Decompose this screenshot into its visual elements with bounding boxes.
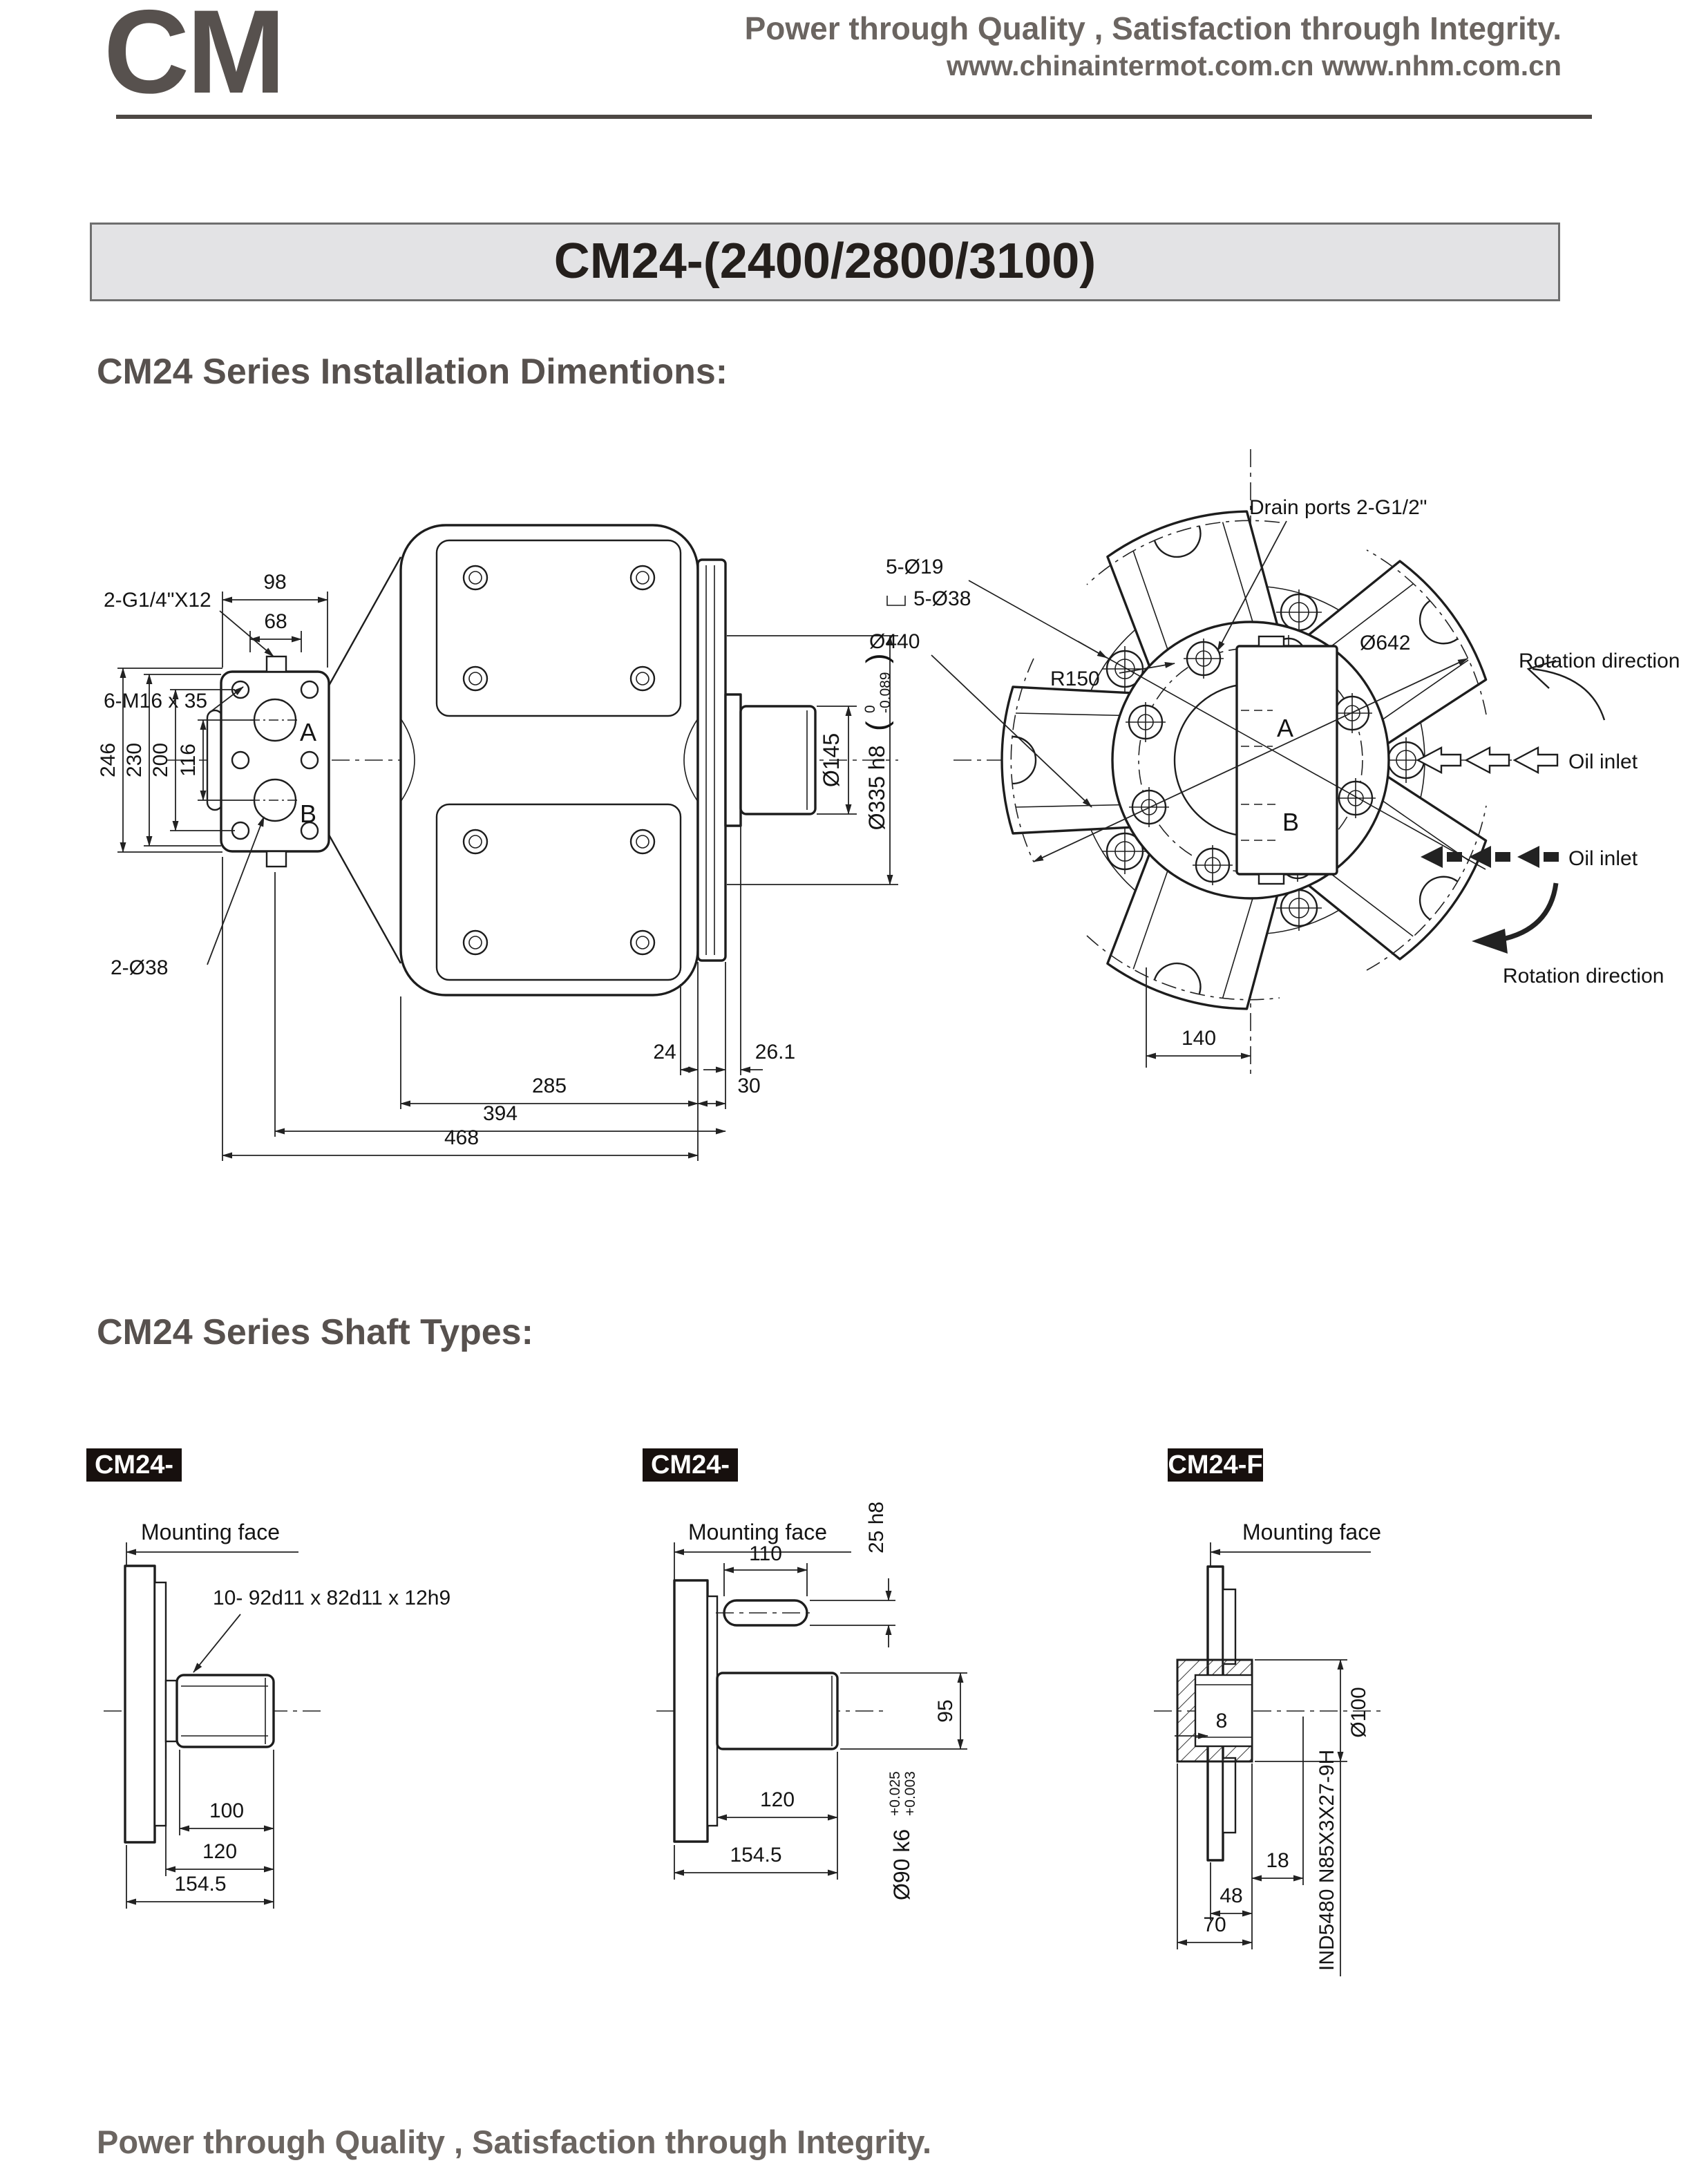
shaft-p-drawing: Mounting face 110 25 h8 95 Ø90 k6 +0.025 (656, 1502, 967, 1900)
dim-pilot-dia: Ø335 h8 ( 0 -0.089 ) (860, 653, 894, 830)
rotation-direction-top-label: Rotation direction (1519, 650, 1680, 672)
dim-30: 30 (737, 1075, 760, 1097)
model-title-bar: CM24-(2400/2800/3100) (90, 223, 1560, 301)
svg-text:Ø335 h8: Ø335 h8 (864, 746, 889, 831)
side-view-drawing: A B 98 68 2-G1/4"X12 6-M16 x 35 2-Ø38 24… (97, 525, 898, 1161)
paren-open: ( (860, 721, 894, 731)
footer-tagline: Power through Quality , Satisfaction thr… (97, 2123, 931, 2161)
counterbore-icon (887, 596, 905, 605)
shaft-p-tol-lower: +0.003 (902, 1771, 918, 1816)
dim-26-1: 26.1 (755, 1041, 795, 1063)
shaft-p-dim-110: 110 (749, 1542, 782, 1565)
leader-envelope-dia: Ø642 (1360, 632, 1410, 654)
oil-inlet-open-arrows-icon (1418, 748, 1557, 773)
shaft-f-drawing: Mounting face 8 Ø100 18 48 70 (1154, 1520, 1382, 1976)
header-tagline: Power through Quality , Satisfaction thr… (745, 10, 1562, 47)
oil-inlet-filled-arrows-icon (1421, 846, 1559, 868)
shaft-d-dim-120: 120 (202, 1840, 237, 1863)
paren-close: ) (860, 653, 894, 663)
catalog-page: CM Power through Quality , Satisfaction … (0, 0, 1708, 2165)
shaft-f-dim-70: 70 (1203, 1913, 1226, 1936)
rotation-arrow-filled-icon (1472, 883, 1556, 954)
top-gauge-port (267, 656, 286, 672)
dim-24: 24 (653, 1041, 676, 1063)
dim-98: 98 (263, 571, 286, 594)
brand-logo: CM (104, 0, 283, 120)
shaft-f-bore-dia: Ø100 (1347, 1687, 1370, 1737)
shaft-f-dim-48: 48 (1220, 1884, 1242, 1907)
rotation-direction-bottom-label: Rotation direction (1503, 965, 1664, 987)
leader-drain-ports: Drain ports 2-G1/2" (1249, 496, 1427, 519)
mounting-flange (698, 560, 725, 961)
installation-drawings: A B 98 68 2-G1/4"X12 6-M16 x 35 2-Ø38 24… (0, 428, 1708, 1230)
dim-394: 394 (483, 1102, 518, 1125)
shaft-type-drawings: Mounting face 10- 92d11 x 82d11 x 12h9 1… (0, 1486, 1708, 2115)
shaft-f-mounting-face-label: Mounting face (1242, 1520, 1381, 1544)
leader-counterbore: 5-Ø38 (913, 587, 971, 610)
dim-shaft-dia: Ø145 (819, 733, 844, 787)
dim-230: 230 (123, 743, 146, 777)
header-rule (116, 115, 1592, 119)
shaft-p-flange (674, 1580, 708, 1842)
shaft-f-dim-8: 8 (1216, 1710, 1228, 1732)
shaft-p-tol-upper: +0.025 (887, 1771, 903, 1816)
shaft-d-drawing: Mounting face 10- 92d11 x 82d11 x 12h9 1… (104, 1520, 450, 1909)
side-port-a-label: A (300, 718, 316, 746)
dim-285: 285 (532, 1075, 567, 1097)
section-heading-shaft-types: CM24 Series Shaft Types: (97, 1312, 533, 1353)
shaft-d-flange (125, 1566, 155, 1842)
leader-bolt-circle: R150 (1050, 668, 1100, 690)
shaft-d-dim-100: 100 (209, 1799, 244, 1822)
dim-140: 140 (1182, 1027, 1216, 1050)
dim-468: 468 (444, 1126, 479, 1149)
pilot-tol-upper: 0 (862, 705, 878, 713)
shaft-d-dim-154-5: 154.5 (174, 1873, 226, 1895)
side-port-b-label: B (300, 800, 316, 828)
leader-main-ports: 2-Ø38 (111, 956, 168, 979)
shaft-p-dia-spec: Ø90 k6 +0.025 +0.003 (887, 1771, 918, 1900)
leader-gauge-ports: 2-G1/4"X12 (104, 589, 211, 612)
shaft-p-dim-95: 95 (934, 1699, 957, 1722)
front-port-a-label: A (1277, 714, 1293, 742)
section-heading-installation: CM24 Series Installation Dimentions: (97, 351, 728, 393)
leader-mount-bolts: 6-M16 x 35 (104, 690, 207, 712)
output-shaft (741, 706, 815, 814)
shaft-d-mounting-face-label: Mounting face (141, 1520, 280, 1544)
dim-200: 200 (149, 743, 172, 777)
front-view-drawing: A B Drain ports 2-G1/2" 5-Ø19 5-Ø38 Ø440… (869, 449, 1680, 1078)
header-websites: www.chinaintermot.com.cn www.nhm.com.cn (947, 50, 1562, 82)
shaft-f-spline-spec: IND5480 N85X3X27-9H (1316, 1750, 1338, 1971)
bottom-gauge-port (267, 851, 286, 867)
dim-246: 246 (97, 743, 120, 777)
shaft-d-spline-spec: 10- 92d11 x 82d11 x 12h9 (213, 1587, 450, 1609)
shaft-type-label-d: CM24-D (86, 1448, 182, 1482)
model-title: CM24-(2400/2800/3100) (554, 234, 1097, 289)
shaft-hub (725, 694, 741, 826)
front-port-b-label: B (1282, 808, 1299, 836)
pilot-tol-lower: -0.089 (877, 672, 893, 713)
oil-inlet-top-label: Oil inlet (1568, 750, 1638, 773)
shaft-type-label-p: CM24-P (643, 1448, 738, 1482)
oil-inlet-bottom-label: Oil inlet (1568, 847, 1638, 870)
shaft-p-mounting-face-label: Mounting face (688, 1520, 827, 1544)
svg-text:Ø90 k6: Ø90 k6 (889, 1829, 914, 1900)
leader-bolt-holes: 5-Ø19 (886, 556, 943, 578)
shaft-p-dim-120: 120 (760, 1788, 795, 1811)
leader-flange-dia: Ø440 (869, 630, 920, 653)
shaft-p-dim-154-5: 154.5 (730, 1844, 781, 1866)
dim-116: 116 (177, 744, 200, 777)
shaft-type-label-f: CM24-F (1168, 1448, 1263, 1482)
shaft-f-dim-18: 18 (1266, 1849, 1289, 1872)
shaft-p-key-spec: 25 h8 (865, 1502, 888, 1553)
dim-68: 68 (264, 610, 287, 633)
shaft-p-cylindrical-shaft (717, 1673, 837, 1749)
